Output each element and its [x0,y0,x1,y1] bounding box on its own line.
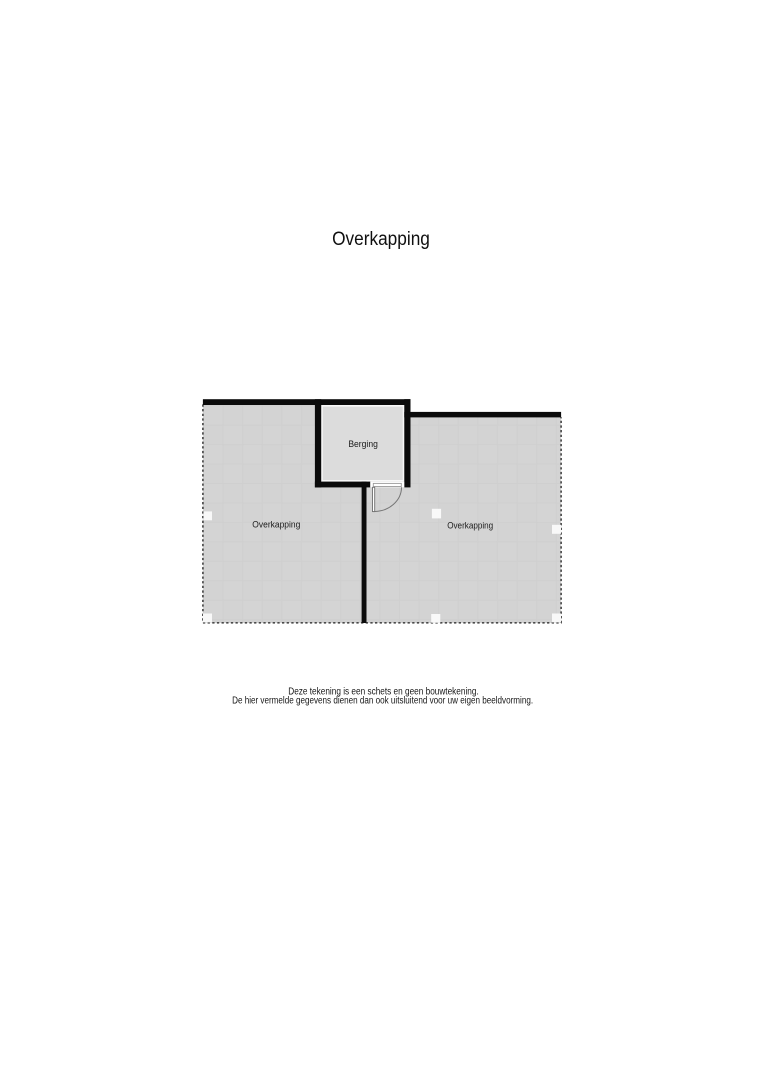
svg-text:Berging: Berging [348,438,378,449]
svg-text:Overkapping: Overkapping [332,228,430,250]
svg-text:Overkapping: Overkapping [252,519,300,530]
svg-text:De hier vermelde gegevens dien: De hier vermelde gegevens dienen dan ook… [232,696,533,707]
svg-text:Overkapping: Overkapping [447,520,493,531]
